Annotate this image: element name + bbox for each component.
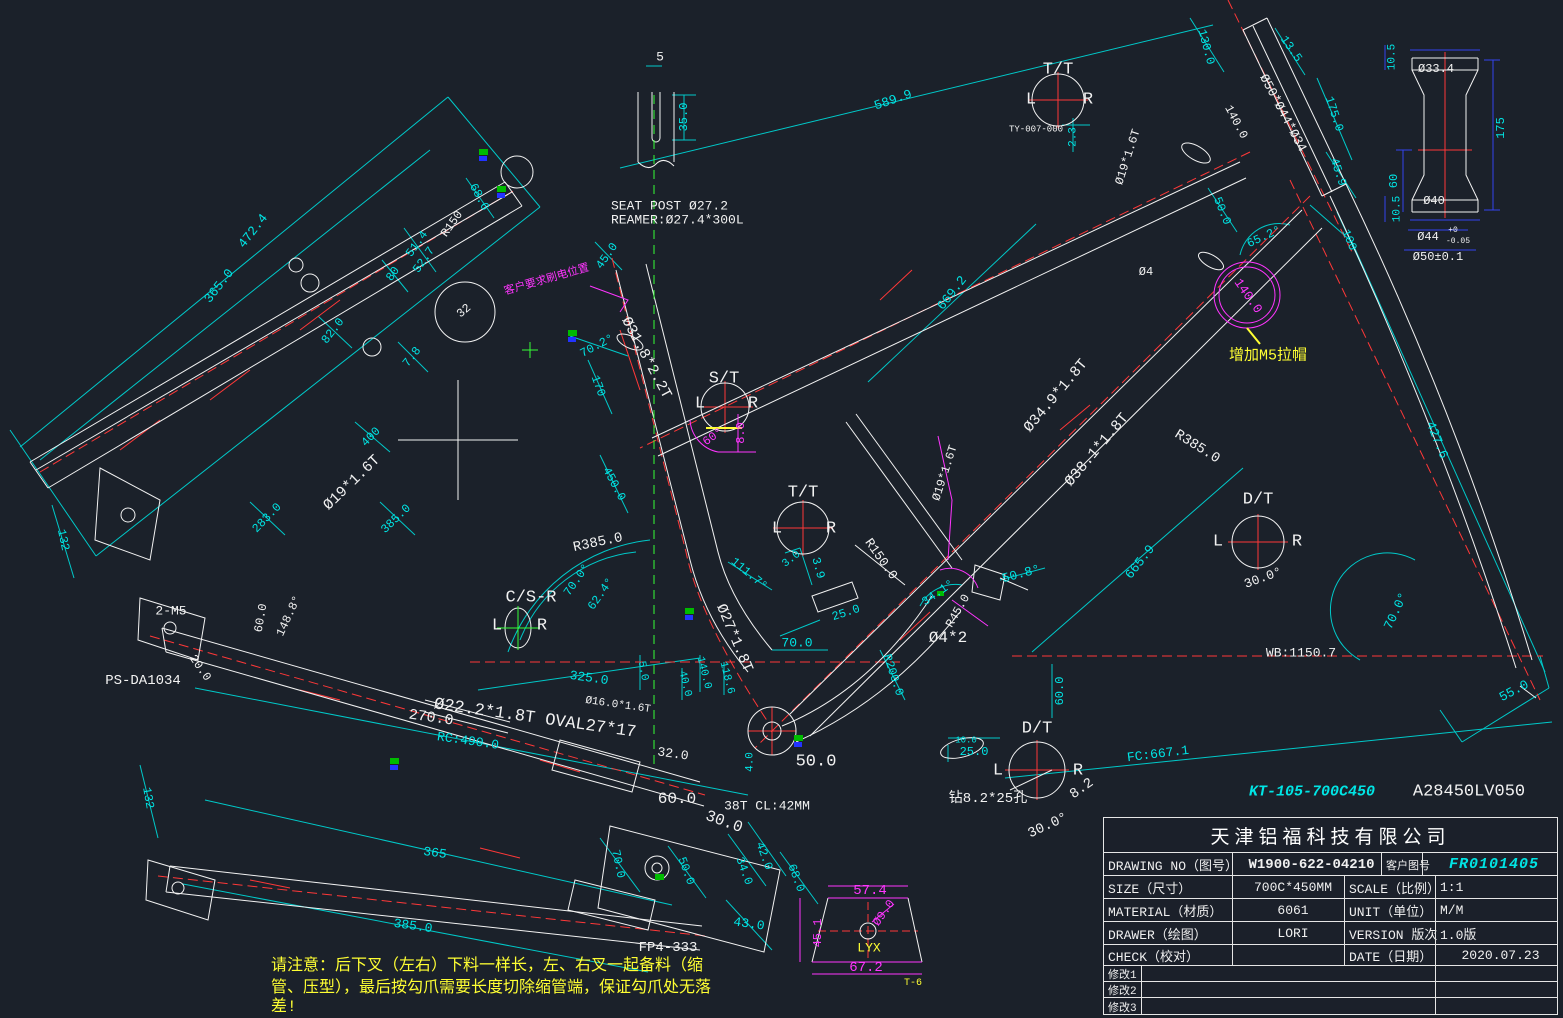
dim-label: Ø50*Ø44*Ø34 [1257,72,1309,154]
dim-label: 2-M5 [155,605,186,618]
dim-label: 30.0° [1242,565,1283,591]
dim-label: 450.0 [600,465,628,502]
dim-label: 7.8 [401,345,424,369]
version-value: 1.0版 [1435,922,1563,945]
rev1-value [1141,966,1444,982]
title-row-rev1: 修改1 [1104,965,1557,982]
dim-label: 70.0° [562,562,592,598]
dim-label: 665.9 [1123,543,1157,582]
dim-label: 70.2° [578,332,615,360]
material-label: MATERIAL（材质） [1104,899,1240,922]
dim-label: Ø19*1.6T [930,444,959,502]
customer-model-code: KT-105-700C450 [1249,785,1375,800]
dim-label: 13.5 [1278,34,1304,64]
title-row-drawing-no: DRAWING NO（图号） W1900-622-04210 客户图号 FR01… [1104,852,1557,876]
dim-label: 4.0 [746,752,757,772]
dim-label: T-6 [904,979,922,989]
size-label: SIZE（尺寸） [1104,876,1240,899]
dim-label: 50.0 [1211,195,1233,226]
dim-label: L [1026,92,1036,109]
dim-label: 80 [384,265,402,284]
rev3-value [1141,998,1444,1015]
dim-label: L [492,618,502,635]
dim-label: 3.9 [809,556,826,580]
dim-label: R150.0 [862,536,899,582]
company-name: 天津铝福科技有限公司 [1104,818,1557,852]
dim-label: REAMER:Ø27.4*300L [611,214,744,227]
dim-label: 325.0 [569,669,609,687]
title-row-drawer: DRAWER（绘图） LORI VERSION 版次 1.0版 [1104,921,1557,945]
dim-label: Ø19*1.6T [321,453,383,514]
version-label: VERSION 版次 [1344,922,1444,945]
date-value: 2020.07.23 [1435,945,1563,966]
dim-label: R [748,396,758,413]
rev2-value [1141,982,1444,998]
dim-label: WB:1150.7 [1266,647,1336,660]
scale-value: 1:1 [1435,876,1563,899]
dim-label: FP4-333 [639,941,698,955]
dim-label: 589.9 [872,88,913,113]
dim-label: 钻8.2*25孔 [949,792,1027,806]
unit-label: UNIT（单位） [1344,899,1444,922]
dim-label: 50.0 [675,855,696,886]
dim-label: SEAT POST Ø27.2 [611,200,728,213]
dim-label: 140.0 [694,656,713,691]
dim-label: 62.4° [586,576,616,612]
rev3-date [1435,998,1563,1015]
dim-label: 55.0 [1497,678,1531,704]
dim-label: 增加M5拉帽 [1229,349,1307,364]
dim-label: 669.2 [935,274,969,313]
title-block: 天津铝福科技有限公司 DRAWING NO（图号） W1900-622-0421… [1103,817,1558,1015]
dim-label: 100 [1339,228,1358,253]
dim-label: R [1083,92,1093,109]
dim-label: 140.0 [1231,276,1264,315]
dim-label: 427.6 [1424,419,1451,460]
dim-label: Ø4 [1139,266,1153,278]
dim-label: 130.0 [1196,28,1217,66]
note-line: 差! [271,999,297,1015]
dim-label: Ø19*1.6T [1113,128,1142,186]
customer-no-value: FR0101405 [1422,853,1563,876]
title-row-rev2: 修改2 [1104,981,1557,998]
dim-label: 68.6 [467,181,491,212]
dim-label: 68.0 [785,862,806,893]
dim-label: R45.0 [944,592,972,629]
dim-label: 175.0 [1323,95,1346,133]
note-line: 请注意：后下叉（左右）下料一样长，左、右叉一起备料（缩 [271,958,703,974]
dim-label: -0.05 [1446,238,1470,246]
dim-label: 40.0 [675,670,692,698]
dim-label: 57.4 [853,884,887,898]
dim-label: R385.0 [1172,428,1222,467]
dim-label: 10.5 [1393,196,1404,222]
dim-label: 30.0° [1026,811,1070,841]
dim-label: 70.0 [609,849,627,880]
dim-label: 400 [359,425,383,449]
dim-label: 60.0 [1054,677,1066,706]
dim-label: TY-007-000 [1009,126,1063,135]
dim-label: 60 [1388,174,1400,188]
dim-label: 67.2 [849,961,883,975]
dim-label: 5.0 [635,660,649,681]
unit-value: M/M [1435,899,1563,922]
dim-label: 70.0° [1382,591,1410,632]
dim-label: 50.0 [796,754,837,771]
drawing-no-value: W1900-622-04210 [1232,853,1390,876]
dim-label: R [537,618,547,635]
drawer-value: LORI [1232,922,1353,945]
dim-label: 25.0 [830,603,861,623]
dim-label: 175 [1495,117,1507,139]
dim-label: 148.8° [274,594,303,638]
dim-label: 32 [455,302,474,320]
dim-label: 20.0 [187,653,213,683]
dim-label: R [1073,763,1083,780]
dim-label: R385.0 [572,531,624,555]
dim-label: R150 [439,209,465,239]
dim-label: 45.1 [812,919,824,948]
dim-label: Ø50±0.1 [1413,251,1463,263]
dim-label: 45.9 [1328,156,1348,187]
dim-label: 35.0 [678,103,690,132]
dim-label: 5 [656,51,664,64]
dim-label: D/T [1022,721,1053,738]
date-label: DATE（日期） [1344,945,1444,966]
dim-label: 42.0 [753,840,774,871]
dim-label: 60.0 [658,791,696,807]
size-value: 700C*450MM [1232,876,1353,899]
dim-label: Ø4*2 [929,630,967,646]
check-label: CHECK（校对） [1104,945,1240,966]
dim-label: 34.0 [733,855,754,886]
dim-label: LYX [857,942,880,955]
part-code: A28450LV050 [1413,784,1525,801]
note-line: 管、压型），最后按勾爪需要长度切除缩管端，保证勾爪处无落 [271,980,711,996]
cad-canvas: 472.4365.068.6R15051.452.78082.0327.8132… [0,0,1563,1018]
dim-label: T/T [1043,62,1074,79]
dim-label: D/T [1243,492,1274,509]
dim-label: FC:667.1 [1126,744,1190,765]
scale-label: SCALE（比例） [1344,876,1444,899]
dim-label: PS-DA1034 [105,674,181,688]
dim-label: 60.0 [253,603,270,633]
dim-label: S/T [709,371,740,388]
dim-label: R200.0 [881,653,906,698]
dim-label: 385.0 [379,502,413,536]
dim-label: 45.0 [594,241,620,271]
title-row-size: SIZE（尺寸） 700C*450MM SCALE（比例） 1:1 [1104,875,1557,899]
dim-label: 170 [589,374,608,398]
dim-label: 365.0 [202,267,236,306]
dim-label: 132 [140,786,156,809]
dim-label: 82.0 [319,316,346,346]
rev2-date [1435,982,1563,998]
dim-label: 8.0 [735,422,747,444]
dim-label: Ø16.0*1.6T [585,696,652,716]
dim-label: 70.0 [781,637,812,650]
title-row-rev3: 修改3 [1104,997,1557,1015]
dim-label: Ø34.9*1.8T [1021,357,1090,436]
dim-label: L [695,396,705,413]
dim-label: R [1292,534,1302,551]
dim-label: Ø44 [1417,231,1439,243]
dim-label: L [993,763,1003,780]
dim-label: 客户要求刷电位置 [503,264,591,299]
dim-label: 2.3 [1069,127,1080,147]
dim-label: C/S-R [505,590,556,607]
dim-label: 38T CL:42MM [724,800,810,813]
dim-label: L [1213,534,1223,551]
dim-label: R [826,521,836,538]
dim-label: 10.5 [1388,44,1399,70]
dim-label: Ø40 [1423,195,1445,207]
dim-label: 34.1° [920,578,956,608]
dim-label: Ø38.1*1.8T [1062,411,1131,490]
dim-label: T/T [788,485,819,502]
dim-label: 25.0 [960,746,989,758]
dim-label: 43.0 [733,915,766,932]
dim-label: Ø31.8*2.2T [618,315,674,402]
drawing-no-label: DRAWING NO（图号） [1104,853,1240,876]
dim-label: 65.2° [1245,224,1283,250]
dim-label: Ø33.4 [1418,63,1454,75]
dim-label: 283.0 [250,501,284,535]
dim-label: 32.0 [657,745,690,762]
dim-label: +0 [1448,227,1458,235]
dim-label: 132 [55,528,71,552]
dim-label: 118.6 [717,661,736,696]
dim-label: 60° [701,426,726,448]
dim-label: L [772,521,782,538]
dim-label: 385.0 [393,917,433,935]
dim-label: Ø9.0 [871,898,897,928]
dim-label: 365 [423,845,448,861]
dim-label: 472.4 [236,212,270,251]
title-row-material: MATERIAL（材质） 6061 UNIT（单位） M/M [1104,898,1557,922]
rev1-date [1435,966,1563,982]
check-value [1232,945,1353,966]
dim-label: 50.8° [1000,563,1041,586]
dim-label: RC:490.0 [436,730,500,752]
drawer-label: DRAWER（绘图） [1104,922,1240,945]
dim-label: 111.7° [729,556,770,593]
title-row-check: CHECK（校对） DATE（日期） 2020.07.23 [1104,944,1557,966]
material-value: 6061 [1232,899,1353,922]
dim-label: 140.0 [1222,103,1250,140]
dim-label: 3.0 [781,550,803,571]
